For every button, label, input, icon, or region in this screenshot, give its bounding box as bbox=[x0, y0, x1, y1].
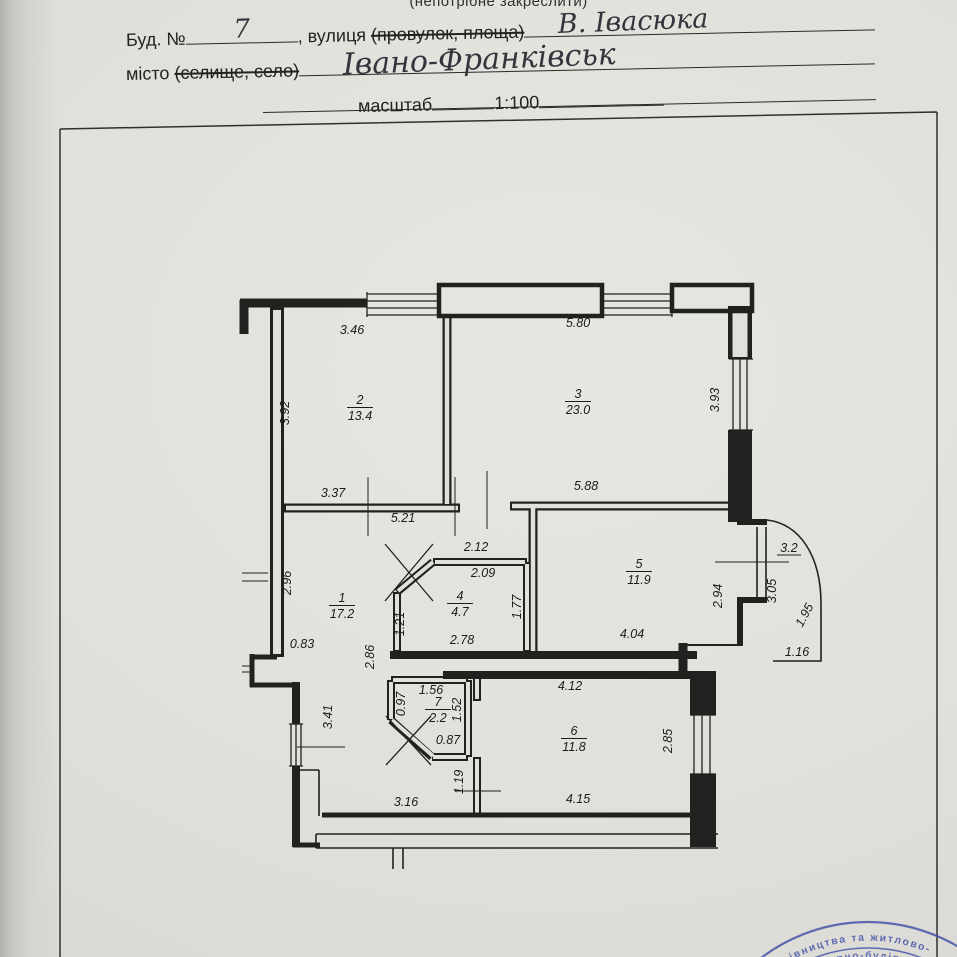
dimension-label: 3.41 bbox=[321, 705, 335, 729]
window-top-left bbox=[367, 292, 439, 317]
walls-exterior-hollow bbox=[277, 306, 740, 657]
room-number: 1 bbox=[339, 591, 346, 605]
house-number-field: 7 bbox=[185, 23, 297, 44]
dimension-label: 2.86 bbox=[363, 645, 377, 670]
room-area: 23.0 bbox=[565, 403, 590, 417]
dimension-label: 4.15 bbox=[566, 792, 590, 806]
dimension-label: 2.85 bbox=[661, 729, 675, 754]
stamp-text-outer: івництва та житлово- bbox=[787, 932, 933, 957]
official-stamp: івництва та житлово- атурно-будів bbox=[691, 922, 957, 957]
label-building-number: Буд. № bbox=[126, 29, 186, 51]
dimension-label: 0.97 bbox=[394, 691, 408, 716]
dimension-lines bbox=[242, 471, 789, 791]
window-right-room3 bbox=[729, 359, 753, 430]
room-number: 3 bbox=[575, 387, 582, 401]
dimension-label: 5.88 bbox=[574, 479, 598, 493]
dimension-label: 4.04 bbox=[620, 627, 644, 641]
dimension-label: 3.93 bbox=[708, 388, 722, 412]
dimension-label: 2.12 bbox=[463, 540, 488, 554]
room-area: 2.2 bbox=[428, 711, 446, 725]
dimension-label: 5.80 bbox=[566, 316, 590, 330]
dimension-label: 2.09 bbox=[470, 566, 495, 580]
room-area: 13.4 bbox=[348, 409, 372, 423]
dimension-label: 3.05 bbox=[765, 579, 779, 603]
dimension-label: 1.19 bbox=[452, 770, 466, 794]
label-city-struck: (селище, село) bbox=[174, 60, 299, 84]
label-street: , вулиця bbox=[297, 25, 371, 48]
dimension-label: 2.94 bbox=[711, 584, 725, 609]
room-area: 11.8 bbox=[562, 740, 585, 754]
floor-plan: 3.465.803.923.933.375.885.212.122.092.96… bbox=[0, 0, 957, 957]
dimension-label: 4.12 bbox=[558, 679, 582, 693]
dimension-label: 5.21 bbox=[391, 511, 415, 525]
dimension-label: 3.37 bbox=[321, 486, 346, 500]
dimension-label: 1.16 bbox=[785, 645, 809, 659]
room-area: 4.7 bbox=[451, 605, 469, 619]
window-right-room6 bbox=[690, 715, 716, 774]
walls-solid bbox=[240, 300, 767, 847]
label-city: місто bbox=[126, 63, 175, 85]
scanned-sheet: (непотрібне закреслити) Буд. № 7 , вулиц… bbox=[0, 0, 957, 957]
scale-value: 1:100 bbox=[494, 92, 539, 114]
window-left-lower bbox=[289, 724, 303, 766]
svg-text:івництва та житлово-: івництва та житлово- bbox=[787, 932, 933, 957]
room-number: 5 bbox=[636, 557, 643, 571]
page-frame bbox=[60, 112, 937, 957]
room-number: 4 bbox=[457, 589, 464, 603]
window-top-right bbox=[602, 292, 672, 317]
room-number: 7 bbox=[435, 695, 443, 709]
dimension-label: 0.87 bbox=[436, 733, 461, 747]
house-number-value: 7 bbox=[185, 12, 298, 46]
dimension-label: 1.52 bbox=[450, 698, 464, 722]
room-area: 17.2 bbox=[330, 607, 354, 621]
wall-blocks-outline bbox=[439, 285, 752, 316]
room-area: 11.9 bbox=[627, 573, 650, 587]
dimension-label: 3.16 bbox=[394, 795, 418, 809]
dimension-label: 1.21 bbox=[393, 612, 407, 636]
dimension-label: 1.77 bbox=[510, 594, 524, 619]
dimension-label: 3.46 bbox=[340, 323, 364, 337]
outer-boundary bbox=[296, 770, 718, 869]
room-number: 6 bbox=[571, 724, 578, 738]
room-number: 2 bbox=[356, 393, 364, 407]
label-scale: масштаб bbox=[358, 94, 433, 117]
dimension-label: 2.96 bbox=[280, 571, 294, 596]
dimension-label: 3.92 bbox=[278, 401, 292, 425]
walls-exterior-hollow-core bbox=[277, 310, 740, 654]
dimension-label: 3.2 bbox=[780, 541, 797, 555]
dimension-label: 0.83 bbox=[290, 637, 314, 651]
dimension-label: 2.78 bbox=[449, 633, 474, 647]
dimension-label: 1.95 bbox=[793, 601, 817, 629]
